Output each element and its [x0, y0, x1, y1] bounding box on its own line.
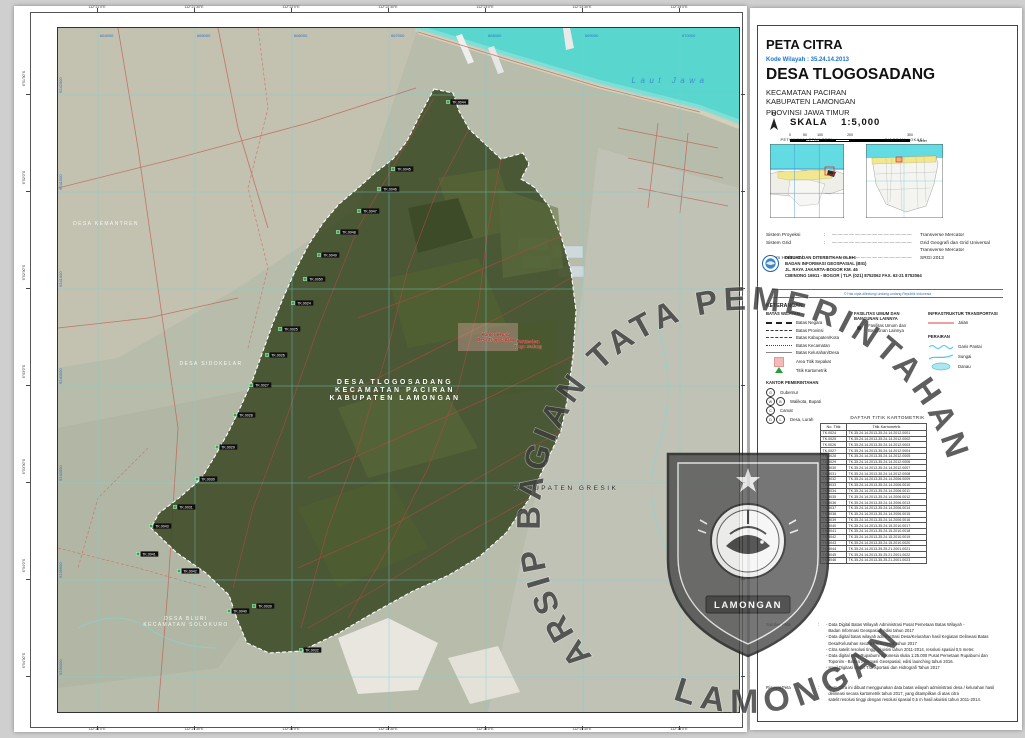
kantor-circle-icon: W: [766, 397, 775, 406]
svg-text:9240000: 9240000: [58, 465, 63, 481]
svg-text:666000: 666000: [294, 33, 308, 38]
legend-item: Titik Kartometrik: [766, 367, 848, 375]
riwayat-peta: Riwayat Peta : - Peta Citra ini dibuat m…: [758, 685, 1017, 704]
batas-kabupaten-symbol: [766, 337, 792, 338]
legend-item: Batas Kabupaten/Kota: [766, 334, 848, 342]
svg-text:9239500: 9239500: [58, 562, 63, 578]
svg-text:DESA TLOGOSADANG: DESA TLOGOSADANG: [337, 379, 453, 386]
big-logo-icon: [762, 255, 779, 272]
text-line: - Data digital batas wilayah administras…: [826, 634, 988, 640]
svg-text:TK.0048: TK.0048: [342, 231, 356, 235]
svg-text:TK.0049: TK.0049: [323, 254, 337, 258]
fasum-symbol: [854, 326, 864, 330]
north-arrow: U: [766, 112, 782, 134]
svg-text:TK.0031: TK.0031: [179, 506, 193, 510]
keterangan-title: KETERANGAN: [766, 303, 1009, 309]
batas-desa-symbol: [766, 352, 792, 353]
admin-kecamatan: KECAMATAN PACIRAN: [766, 88, 1009, 97]
sumber-label: Sumber Peta: [766, 622, 818, 672]
svg-text:9241500: 9241500: [58, 174, 63, 190]
svg-text:KABUPATEN LAMONGAN: KABUPATEN LAMONGAN: [329, 395, 460, 402]
svg-text:670000: 670000: [682, 33, 696, 38]
kode-wilayah: Kode Wilayah : 35.24.14.2013: [766, 57, 1009, 63]
map-sheet: 112°21'0"E112°21'0"E112°21'30"E112°21'30…: [14, 6, 747, 732]
inset-locator: PETUNJUK LETAK PETA: [770, 138, 844, 223]
svg-text:TK.0032: TK.0032: [305, 649, 319, 653]
svg-text:Laut Jawa: Laut Jawa: [632, 76, 709, 85]
svg-text:TK.0024: TK.0024: [297, 302, 311, 306]
inset-locator-map: [770, 144, 844, 218]
village-title: DESA TLOGOSADANG: [766, 66, 1009, 84]
tk-table: No. Titik Titik Kartometrik TK.0024TK.35…: [820, 423, 927, 564]
svg-text:TK.0042: TK.0042: [183, 570, 197, 574]
svg-text:664000: 664000: [100, 33, 114, 38]
map-label: PerumahanTlogo Sadang: [514, 339, 542, 349]
svg-text:TK.0028: TK.0028: [239, 414, 253, 418]
keterangan-section: KETERANGAN BATAS WILAYAH Batas Negara Ba…: [758, 303, 1017, 413]
svg-text:TK.0043: TK.0043: [155, 525, 169, 529]
fasum-title: FASILITAS UMUM DAN BANGUNAN LAINNYA: [854, 311, 924, 321]
svg-text:DESA KEMANTREN: DESA KEMANTREN: [73, 221, 139, 227]
perairan-title: PERAIRAN: [928, 334, 1008, 339]
legend-item: Batas Kecamatan: [766, 342, 848, 350]
legend-item: Fasilitas Umum dan Bangunan Lainnya: [854, 324, 924, 332]
svg-text:TK.0027: TK.0027: [255, 384, 269, 388]
svg-text:KABUPATEN GRESIK: KABUPATEN GRESIK: [514, 485, 619, 492]
legend-item: Batas Negara: [766, 319, 848, 327]
projection-row: Sistem Grid:— — — — — — — — — — — — — —G…: [766, 240, 1009, 255]
sumber-lines: - Data Digital Batas Wilayah Administras…: [826, 622, 988, 672]
map-label: Laut Jawa: [632, 76, 709, 85]
scale-value: 1:5,000: [841, 117, 880, 128]
legend-panel-frame: PETA CITRA Kode Wilayah : 35.24.14.2013 …: [757, 25, 1018, 722]
svg-text:TK.0026: TK.0026: [271, 354, 285, 358]
legend-item: Garis Pantai: [928, 342, 1008, 352]
svg-text:KECAMATAN PACIRAN: KECAMATAN PACIRAN: [335, 387, 455, 394]
svg-text:TK.0029: TK.0029: [221, 446, 235, 450]
kantor-circle-icon: G: [766, 388, 775, 397]
map-type-title: PETA CITRA: [766, 37, 1009, 52]
svg-text:Desa Tlogosadang: Desa Tlogosadang: [477, 337, 515, 342]
inset-diagram-title: DIAGRAM LOKASI: [866, 138, 943, 142]
batas-provinsi-symbol: [766, 330, 792, 331]
danau-symbol: [928, 362, 954, 371]
title-block: PETA CITRA Kode Wilayah : 35.24.14.2013 …: [758, 37, 1017, 117]
text-line: - Hasil Digitasi Unsur Transportasi dan …: [826, 665, 988, 671]
garis-pantai-symbol: [928, 343, 954, 351]
scale-label: SKALA: [790, 117, 828, 128]
tk-col2-header: Titik Kartometrik: [847, 424, 927, 431]
tk-table-title: DAFTAR TITIK KARTOMETRIK: [766, 415, 1009, 420]
batas-wilayah-title: BATAS WILAYAH: [766, 311, 848, 316]
kantor-row: GGubernur: [766, 388, 848, 397]
inset-maps: PETUNJUK LETAK PETA DIAG: [758, 138, 1017, 223]
svg-text:9240500: 9240500: [58, 368, 63, 384]
publisher-block: DIBUAT DAN DITERBITKAN OLEH: BADAN INFOR…: [758, 255, 1017, 279]
svg-text:669000: 669000: [585, 33, 599, 38]
kantor-circle-icon: B: [776, 397, 785, 406]
kantor-row: CCamat: [766, 406, 848, 415]
kantor-circle-icon: C: [766, 406, 775, 415]
tk-table-row: TK.0046TK.35.24.14.2013-35.25.21.2001.00…: [821, 557, 927, 563]
map-label: DESA TLOGOSADANGKECAMATAN PACIRANKABUPAT…: [329, 379, 460, 402]
svg-text:TK.0047: TK.0047: [363, 210, 377, 214]
legend-item: Danau: [928, 362, 1008, 372]
svg-text:TK.0040: TK.0040: [233, 610, 247, 614]
publisher-line4: CIBINONG 16911 - BOGOR | TLP. (021) 8752…: [785, 273, 922, 279]
map-label: DESA SIDOKELAR: [180, 361, 243, 367]
tk-col1-header: No. Titik: [821, 424, 847, 431]
svg-text:KECAMATAN SOLOKURO: KECAMATAN SOLOKURO: [143, 622, 228, 628]
kantor-row: WBWalikota, Bupati: [766, 397, 848, 406]
legend-item: Jalan: [928, 319, 1008, 327]
kantor-title: KANTOR PEMERINTAHAN: [766, 380, 848, 385]
svg-text:9241000: 9241000: [58, 271, 63, 287]
svg-text:TK.0030: TK.0030: [201, 478, 215, 482]
riwayat-label: Riwayat Peta: [766, 685, 818, 704]
sumber-peta: Sumber Peta : - Data Digital Batas Wilay…: [758, 622, 1017, 672]
riwayat-lines: - Peta Citra ini dibuat menggunakan data…: [826, 685, 994, 704]
svg-text:TK.0046: TK.0046: [383, 188, 397, 192]
satellite-map: 6640006650006660006670006680006690006700…: [58, 28, 739, 712]
titik-kartometrik-symbol: [766, 367, 792, 373]
svg-text:Tlogo Sadang: Tlogo Sadang: [514, 344, 542, 349]
legend-item: Sungai: [928, 352, 1008, 362]
svg-text:665000: 665000: [197, 33, 211, 38]
batas-negara-symbol: [766, 322, 792, 324]
admin-kabupaten: KABUPATEN LAMONGAN: [766, 97, 1009, 106]
sungai-symbol: [928, 353, 954, 361]
legend-item: Batas Kelurahan/Desa: [766, 349, 848, 357]
svg-text:9239000: 9239000: [58, 659, 63, 675]
text-line: satelit resolusi tinggi dengan resolusi …: [826, 697, 994, 703]
inset-diagram: DIAGRAM LOKASI: [866, 138, 943, 223]
copyright-rule: © Hak cipta dilindungi undang-undang Rep…: [772, 289, 1003, 298]
north-arrow-icon: [769, 118, 779, 132]
jalan-symbol: [928, 322, 954, 324]
projection-row: Sistem Proyeksi:— — — — — — — — — — — — …: [766, 232, 1009, 240]
legend-panel: PETA CITRA Kode Wilayah : 35.24.14.2013 …: [750, 8, 1022, 730]
svg-text:TK.0045: TK.0045: [397, 168, 411, 172]
map-area: 6640006650006660006670006680006690006700…: [57, 27, 740, 713]
svg-text:TK.0025: TK.0025: [284, 328, 298, 332]
tk-table-section: DAFTAR TITIK KARTOMETRIK No. Titik Titik…: [758, 415, 1017, 564]
map-label: Kantor KepalaDesa Tlogosadang: [477, 332, 515, 342]
inset-diagram-map: [866, 144, 943, 218]
transport-title: INFRASTRUKTUR TRANSPORTASI: [928, 311, 1008, 316]
map-label: KABUPATEN GRESIK: [514, 485, 619, 492]
batas-kecamatan-symbol: [766, 345, 792, 346]
svg-text:9242000: 9242000: [58, 77, 63, 93]
svg-text:TK.0050: TK.0050: [309, 278, 323, 282]
area-titik-sepakat-symbol: [766, 357, 792, 367]
inset-locator-title: PETUNJUK LETAK PETA: [770, 138, 844, 142]
legend-item: Batas Provinsi: [766, 327, 848, 335]
svg-text:TK.0039: TK.0039: [258, 605, 272, 609]
svg-text:TK.0044: TK.0044: [452, 101, 466, 105]
svg-text:667000: 667000: [391, 33, 405, 38]
svg-text:TK.0041: TK.0041: [142, 553, 156, 557]
svg-text:DESA SIDOKELAR: DESA SIDOKELAR: [180, 361, 243, 367]
legend-item: Area Titik Sepakat: [766, 357, 848, 367]
svg-text:668000: 668000: [488, 33, 502, 38]
map-label: DESA KEMANTREN: [73, 221, 139, 227]
